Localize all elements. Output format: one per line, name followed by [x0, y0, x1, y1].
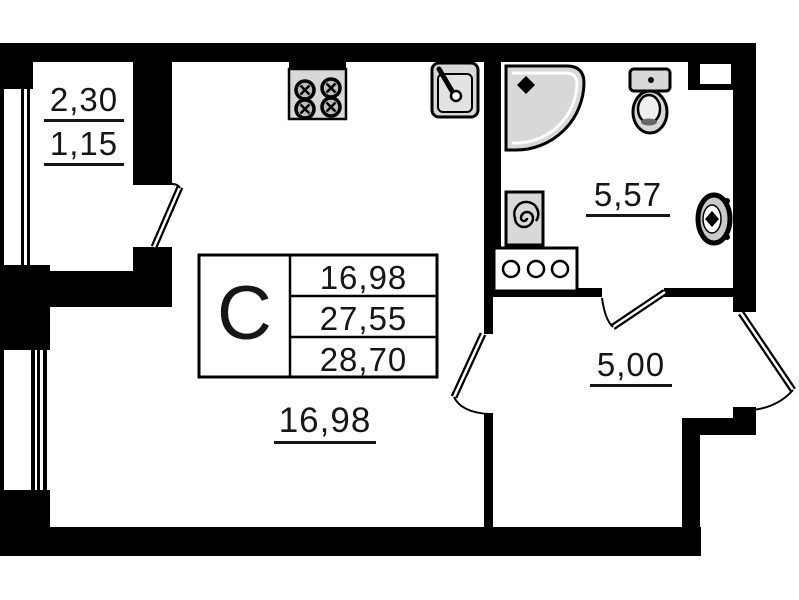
balcony-area-full-label: 2,30 [44, 83, 124, 122]
bathroom-area-label: 5,57 [586, 178, 670, 217]
floor-plan: 2,30 1,15 5,57 5,00 16,98 С 16,98 27,55 … [0, 0, 799, 600]
bathroom-door [602, 292, 665, 327]
table-area-overall: 28,70 [290, 343, 437, 376]
stove-icon [289, 62, 346, 119]
living-room-window [0, 348, 47, 492]
sink-icon [432, 63, 478, 117]
hallway-area-label: 5,00 [590, 348, 672, 387]
living-area-label: 16,98 [274, 403, 376, 444]
toilet-icon [630, 69, 670, 133]
unit-type-label: С [199, 276, 290, 352]
table-area-living: 16,98 [290, 261, 437, 294]
cabinet-icon [494, 248, 577, 291]
balcony-area-reduced-label: 1,15 [44, 127, 124, 166]
entrance-door [741, 313, 793, 410]
vent-shaft [700, 64, 731, 84]
balcony-window [0, 87, 30, 267]
table-area-total: 27,55 [290, 302, 437, 335]
shower-icon [506, 66, 584, 150]
balcony-door [154, 184, 180, 247]
washing-machine-icon [506, 192, 543, 245]
washbasin-icon [698, 195, 730, 243]
living-room-door [454, 334, 488, 414]
